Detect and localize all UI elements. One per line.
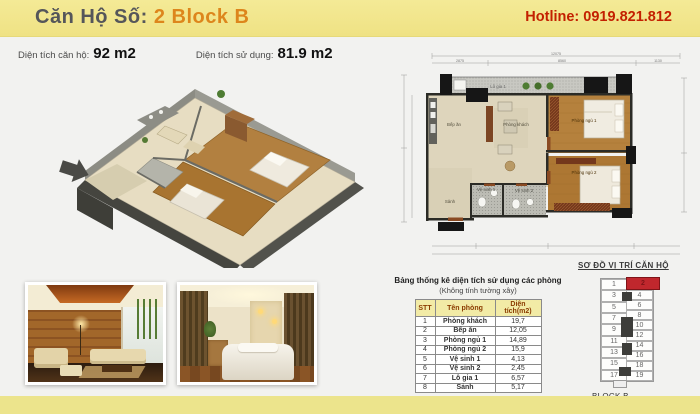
living-room-photo (25, 282, 166, 385)
cell-room: Vệ sinh 1 (435, 355, 495, 365)
elevator-core (622, 292, 632, 301)
table-row: 8Sảnh5,17 (415, 383, 541, 393)
unit-cell-highlighted: 2 (626, 277, 660, 290)
cell-area: 14,89 (495, 336, 541, 346)
cell-room: Sảnh (435, 383, 495, 393)
building-outline: 1357911131517 2468101214161819 (600, 278, 654, 382)
cell-stt: 8 (415, 383, 435, 393)
label-living: Phòng khách (503, 122, 529, 127)
cell-room: Phòng ngủ 1 (435, 336, 495, 346)
wardrobe (550, 97, 559, 131)
cell-stt: 6 (415, 364, 435, 374)
cell-stt: 1 (415, 317, 435, 327)
table-title: Bảng thống kê diện tích sử dụng các phòn… (388, 276, 568, 285)
cell-room: Vệ sinh 2 (435, 364, 495, 374)
table-subtitle: (Không tính tường xây) (388, 286, 568, 295)
area-table-body: 1Phòng khách19,72Bếp ăn12,053Phòng ngủ 1… (415, 317, 541, 393)
plant-icon (142, 137, 148, 143)
cell-stt: 3 (415, 336, 435, 346)
plant-icon (217, 90, 225, 98)
plant-icon (522, 82, 529, 89)
unit-cell: 1 (601, 279, 627, 290)
cell-area: 2,45 (495, 364, 541, 374)
cell-room: Phòng ngủ 2 (435, 345, 495, 355)
unit-cell: 6 (626, 300, 653, 310)
label-loggia: Lô gia 1 (490, 84, 506, 89)
elevator-core (619, 367, 631, 376)
cell-stt: 5 (415, 355, 435, 365)
floorplan-3d (25, 60, 375, 268)
header-band: Căn Hộ Số: 2 Block B Hotline: 0919.821.8… (0, 0, 700, 37)
page-title: Căn Hộ Số: 2 Block B (35, 6, 250, 29)
label-bedroom2: Phòng ngủ 2 (572, 170, 597, 175)
table-header-row: STT Tên phòng Diện tích(m2) (415, 300, 541, 317)
location-diagram: SƠ ĐỒ VỊ TRÍ CĂN HỘ 1357911131517 246810… (578, 261, 698, 401)
dim-top-left: 2875 (456, 59, 464, 63)
label-hall: Sảnh (445, 199, 456, 204)
header-stt: STT (415, 300, 435, 317)
dim-top-right: 1130 (654, 59, 662, 63)
table-row: 1Phòng khách19,7 (415, 317, 541, 327)
table-row: 6Vệ sinh 22,45 (415, 364, 541, 374)
cell-room: Phòng khách (435, 317, 495, 327)
flyer-page: Căn Hộ Số: 2 Block B Hotline: 0919.821.8… (0, 0, 700, 414)
dimension-labels: 12075 2875 8560 1130 (456, 52, 662, 63)
cell-area: 12,05 (495, 326, 541, 336)
table-row: 7Lô gia 16,57 (415, 374, 541, 384)
dim-top-total: 12075 (551, 52, 561, 56)
floorplan-2d: 12075 2875 8560 1130 (388, 50, 698, 265)
table-row: 3Phòng ngủ 114,89 (415, 336, 541, 346)
location-title: SƠ ĐỒ VỊ TRÍ CĂN HỘ (578, 261, 698, 270)
hotline: Hotline: 0919.821.812 (525, 9, 672, 25)
cell-stt: 7 (415, 374, 435, 384)
table-row: 5Vệ sinh 14,13 (415, 355, 541, 365)
cell-area: 5,17 (495, 383, 541, 393)
elevator-core (622, 343, 632, 355)
bedroom-photo (177, 282, 317, 385)
area-statistics: Bảng thống kê diện tích sử dụng các phòn… (388, 276, 568, 393)
cell-stt: 4 (415, 345, 435, 355)
wardrobe (554, 203, 610, 211)
table-row: 4Phòng ngủ 215,9 (415, 345, 541, 355)
label-bath2: Vệ sinh 2 (515, 188, 534, 193)
bottom-strip (0, 396, 700, 414)
cell-stt: 2 (415, 326, 435, 336)
area-table: STT Tên phòng Diện tích(m2) 1Phòng khách… (415, 299, 542, 393)
header-room: Tên phòng (435, 300, 495, 317)
hall-area (428, 168, 472, 220)
cell-area: 6,57 (495, 374, 541, 384)
cell-room: Lô gia 1 (435, 374, 495, 384)
table-row: 2Bếp ăn12,05 (415, 326, 541, 336)
cell-room: Bếp ăn (435, 326, 495, 336)
label-kitchen: Bếp ăn (447, 122, 461, 127)
elevator-core (621, 317, 633, 337)
building-stub (613, 380, 627, 388)
cell-area: 15,9 (495, 345, 541, 355)
dim-top-mid: 8560 (558, 59, 566, 63)
cell-area: 19,7 (495, 317, 541, 327)
label-bedroom1: Phòng ngủ 1 (572, 118, 597, 123)
cell-area: 4,13 (495, 355, 541, 365)
plant-icon (546, 82, 553, 89)
unit-cell: 5 (601, 302, 627, 313)
label-bath1: Vệ sinh 1 (477, 187, 496, 192)
title-highlight: 2 Block B (154, 6, 250, 28)
plant-icon (534, 82, 541, 89)
title-prefix: Căn Hộ Số: (35, 6, 154, 28)
header-area: Diện tích(m2) (495, 300, 541, 317)
tv-cabinet (486, 106, 493, 142)
